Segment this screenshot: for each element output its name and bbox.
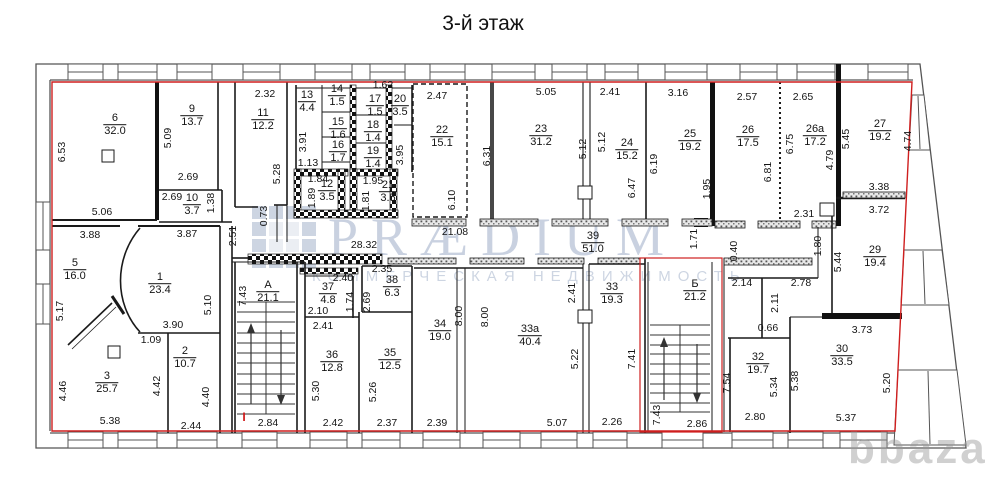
dim-label: 5.28 [272,164,283,184]
dim-label: 2.10 [308,306,328,317]
dim-label: 1.09 [141,335,161,346]
dim-label: 1.74 [345,292,356,312]
dim-label: 2.41 [567,283,578,303]
dim-label: 0.73 [259,206,270,226]
dim-label: 4.46 [58,381,69,401]
dim-label: 1.62 [373,80,393,91]
room-label-2: 210.7 [173,345,196,371]
dim-label: 5.38 [790,371,801,391]
room-label-34: 3419.0 [428,318,451,344]
room-label-10: 103.7 [183,192,201,218]
dim-label: 4.79 [825,150,836,170]
room-label-20: 203.5 [391,93,409,119]
dim-label: 5.12 [597,132,608,152]
dim-label: 5.22 [570,349,581,369]
room-label-30: 3033.5 [830,343,853,369]
dim-label: 7.43 [652,405,663,425]
dim-label: 2.69 [362,292,373,312]
dim-label: 3.95 [395,145,406,165]
dim-label: 7.41 [627,349,638,369]
dim-label: 3.90 [163,320,183,331]
dim-label: 7.43 [238,286,249,306]
dim-label: 7.54 [722,373,733,393]
room-label-6: 632.0 [103,112,126,138]
room-label-35: 3512.5 [378,347,401,373]
dim-label: 5.44 [833,252,844,272]
room-label-14: 141.5 [328,83,346,109]
room-label-27: 2719.2 [868,118,891,144]
dim-label: 28.32 [351,240,377,251]
room-label-25: 2519.2 [678,128,701,154]
dim-label: 0.40 [729,241,740,261]
room-label-36: 3612.8 [320,349,343,375]
dim-label: 1.84 [308,174,328,185]
room-label-38: 386.3 [383,274,401,300]
dim-label: 5.34 [769,377,780,397]
dim-label: 2.32 [255,89,275,100]
dim-label: 5.38 [100,416,120,427]
dim-label: 5.05 [536,87,556,98]
room-label-17: 171.5 [366,93,384,119]
dim-label: 5.37 [836,413,856,424]
room-label-1: 123.4 [148,271,171,297]
room-label-3: 325.7 [95,370,118,396]
dim-label: 21.08 [442,227,468,238]
room-label-33а: 33а40.4 [518,323,542,349]
dim-label: 6.53 [57,142,68,162]
room-label-11: 1112.2 [251,107,274,133]
dim-label: 1.38 [206,193,217,213]
room-label-16: 161.7 [329,139,347,165]
dim-label: 1.95 [363,176,383,187]
dim-label: 5.10 [203,295,214,315]
dim-label: 2.78 [791,278,811,289]
dim-label: 4.42 [152,376,163,396]
dim-label: 5.20 [882,373,893,393]
room-label-33: 3319.3 [600,281,623,307]
dim-label: 2.44 [181,421,201,432]
plan-labels: 632.0913.7103.71112.2134.4141.5151.6161.… [0,0,1000,499]
dim-label: 2.11 [770,293,781,313]
room-label-Б: Б21.2 [683,278,706,304]
room-label-19: 191.4 [364,145,382,171]
dim-label: 8.00 [480,307,491,327]
floor-plan-page: 3-й этаж PRÆDIUM КОММЕРЧЕСКАЯ НЕДВИЖИМОС… [0,0,1000,499]
dim-label: 3.38 [869,182,889,193]
dim-label: 2.31 [794,209,814,220]
dim-label: 1.71 [689,229,700,249]
dim-label: 2.80 [745,412,765,423]
dim-label: 3.16 [668,88,688,99]
room-label-26: 2617.5 [736,124,759,150]
room-label-15: 151.6 [329,116,347,142]
dim-label: 5.45 [841,129,852,149]
room-label-9: 913.7 [180,103,203,129]
room-label-37: 374.8 [319,281,337,307]
room-label-26а: 26а17.2 [803,123,827,149]
dim-label: 5.12 [578,139,589,159]
dim-label: 2.47 [427,91,447,102]
dim-label: 5.06 [92,207,112,218]
dim-label: 6.75 [785,134,796,154]
room-label-22: 2215.1 [430,124,453,150]
room-label-5: 516.0 [63,257,86,283]
dim-label: 5.17 [55,301,66,321]
room-label-39: 3951.0 [581,230,604,256]
dim-label: 2.69 [178,172,198,183]
room-label-А: А21.1 [256,279,279,305]
dim-label: 2.84 [258,418,278,429]
dim-label: 5.07 [547,418,567,429]
dim-label: 6.47 [627,178,638,198]
dim-label: 6.31 [482,146,493,166]
dim-label: 3.87 [177,229,197,240]
dim-label: 1.95 [702,179,713,199]
dim-label: 4.40 [201,387,212,407]
dim-label: 6.81 [763,162,774,182]
dim-label: 3.72 [869,205,889,216]
dim-label: 2.57 [737,92,757,103]
dim-label: 3.91 [298,132,309,152]
room-label-18: 181.4 [364,119,382,145]
dim-label: 2.41 [313,321,333,332]
dim-label: 2.42 [323,418,343,429]
dim-label: 3.88 [80,230,100,241]
dim-label: 2.39 [427,418,447,429]
dim-label: 2.41 [600,87,620,98]
dim-label: 2.65 [793,92,813,103]
dim-label: 3.73 [852,325,872,336]
room-label-32: 3219.7 [746,351,769,377]
dim-label: 1.81 [361,191,372,211]
dim-label: 2.40 [333,273,353,284]
room-label-13: 134.4 [298,89,316,115]
dim-label: 5.26 [368,382,379,402]
dim-label: 5.09 [163,128,174,148]
dim-label: 2.51 [228,226,239,246]
dim-label: 8.00 [454,306,465,326]
room-label-23: 2331.2 [529,123,552,149]
dim-label: 1.13 [298,158,318,169]
dim-label: 2.37 [377,418,397,429]
room-label-24: 2415.2 [615,137,638,163]
dim-label: 0.66 [758,323,778,334]
room-label-29: 2919.4 [863,244,886,270]
dim-label: 4.74 [903,131,914,151]
dim-label: 2.35 [372,264,392,275]
dim-label: 6.10 [447,190,458,210]
entrance-mark: I [242,411,245,423]
dim-label: 1.80 [813,236,824,256]
dim-label: 2.86 [687,419,707,430]
dim-label: 2.26 [602,417,622,428]
dim-label: 6.19 [649,154,660,174]
dim-label: 5.30 [311,381,322,401]
dim-label: 2.14 [732,278,752,289]
dim-label: 1.89 [307,188,318,208]
dim-label: 2.69 [162,192,182,203]
